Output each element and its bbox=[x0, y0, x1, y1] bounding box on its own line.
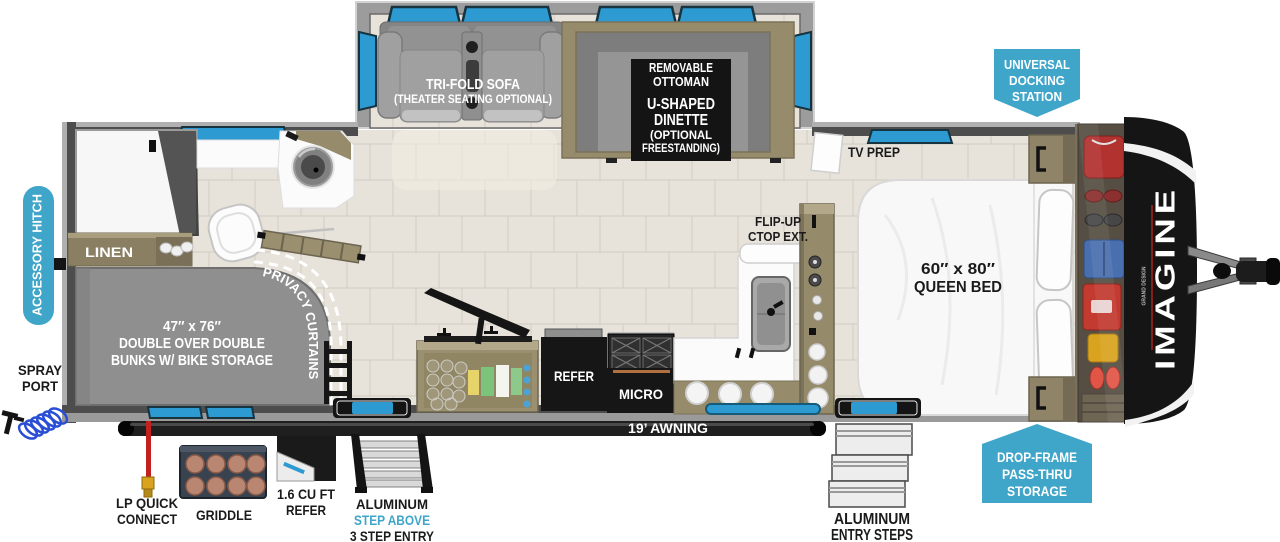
svg-text:GRIDDLE: GRIDDLE bbox=[196, 507, 252, 523]
svg-text:47″ x 76″: 47″ x 76″ bbox=[163, 318, 221, 335]
svg-text:ALUMINUM: ALUMINUM bbox=[834, 511, 910, 528]
svg-text:ALUMINUM: ALUMINUM bbox=[356, 496, 428, 512]
svg-text:REMOVABLE: REMOVABLE bbox=[649, 61, 713, 75]
svg-text:GRAND DESIGN: GRAND DESIGN bbox=[1141, 266, 1147, 305]
svg-text:1.6 CU FT: 1.6 CU FT bbox=[277, 486, 335, 502]
svg-text:(THEATER SEATING OPTIONAL): (THEATER SEATING OPTIONAL) bbox=[394, 92, 552, 106]
svg-text:FREESTANDING): FREESTANDING) bbox=[642, 143, 720, 155]
svg-text:FLIP-UP: FLIP-UP bbox=[755, 214, 801, 229]
svg-text:PASS-THRU: PASS-THRU bbox=[1002, 467, 1072, 482]
svg-text:LP QUICK: LP QUICK bbox=[116, 495, 178, 511]
svg-text:(OPTIONAL: (OPTIONAL bbox=[650, 130, 712, 142]
svg-text:LINEN: LINEN bbox=[85, 244, 133, 260]
svg-text:STEP ABOVE: STEP ABOVE bbox=[354, 512, 430, 528]
svg-text:DOCKING: DOCKING bbox=[1009, 73, 1065, 88]
svg-text:60″ x 80″: 60″ x 80″ bbox=[921, 261, 995, 278]
svg-text:TV PREP: TV PREP bbox=[848, 145, 900, 160]
svg-text:UNIVERSAL: UNIVERSAL bbox=[1004, 57, 1070, 72]
svg-text:ENTRY STEPS: ENTRY STEPS bbox=[831, 527, 913, 542]
svg-text:3 STEP ENTRY: 3 STEP ENTRY bbox=[350, 528, 435, 542]
svg-text:PORT: PORT bbox=[22, 378, 58, 394]
svg-text:SPRAY: SPRAY bbox=[18, 362, 63, 378]
svg-text:REFER: REFER bbox=[554, 368, 594, 384]
svg-text:ACCESSORY HITCH: ACCESSORY HITCH bbox=[30, 194, 44, 316]
svg-text:STORAGE: STORAGE bbox=[1007, 484, 1067, 499]
svg-text:REFER: REFER bbox=[286, 502, 326, 518]
svg-text:DOUBLE OVER DOUBLE: DOUBLE OVER DOUBLE bbox=[119, 335, 265, 352]
svg-text:CTOP EXT.: CTOP EXT. bbox=[748, 229, 808, 244]
svg-text:QUEEN BED: QUEEN BED bbox=[914, 279, 1002, 296]
svg-text:U-SHAPED: U-SHAPED bbox=[647, 96, 715, 113]
svg-text:STATION: STATION bbox=[1012, 89, 1062, 104]
svg-text:DROP-FRAME: DROP-FRAME bbox=[997, 450, 1077, 465]
svg-text:OTTOMAN: OTTOMAN bbox=[653, 75, 709, 89]
svg-text:TRI-FOLD SOFA: TRI-FOLD SOFA bbox=[426, 76, 520, 93]
svg-text:DINETTE: DINETTE bbox=[654, 112, 708, 129]
svg-text:BUNKS W/ BIKE STORAGE: BUNKS W/ BIKE STORAGE bbox=[111, 352, 273, 369]
svg-text:MICRO: MICRO bbox=[619, 386, 663, 402]
svg-text:IMAGINE: IMAGINE bbox=[1149, 186, 1180, 370]
svg-text:CONNECT: CONNECT bbox=[117, 511, 177, 527]
svg-text:19’ AWNING: 19’ AWNING bbox=[628, 421, 708, 436]
